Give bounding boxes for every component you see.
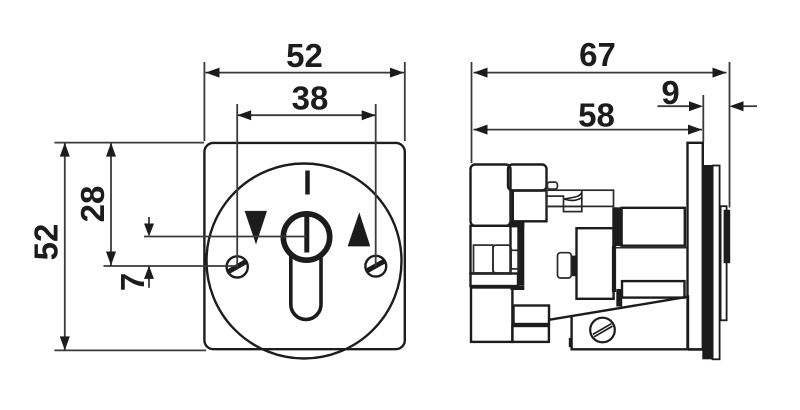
svg-text:7: 7 — [114, 273, 151, 291]
svg-text:52: 52 — [286, 37, 323, 74]
svg-text:9: 9 — [661, 74, 679, 111]
svg-text:58: 58 — [578, 97, 615, 134]
svg-text:38: 38 — [292, 80, 329, 117]
svg-text:28: 28 — [74, 186, 111, 223]
svg-text:67: 67 — [579, 36, 616, 73]
svg-text:52: 52 — [28, 224, 65, 261]
